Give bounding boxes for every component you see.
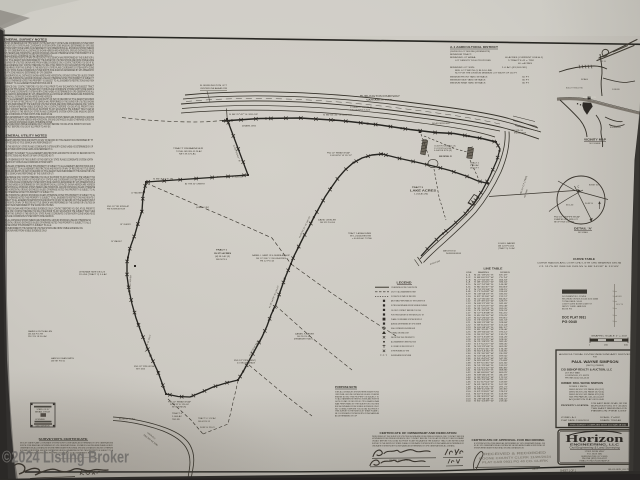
svg-text:NET 39.371 AC: NET 39.371 AC (179, 152, 197, 155)
svg-text:S PERFORMED BY THE: S PERFORMED BY THE (391, 351, 409, 353)
svg-text:PB 2 PG 18 20.0 AC: PB 2 PG 18 20.0 AC (28, 335, 48, 338)
svg-text:AD83 AS DETERMINED BY GPS OBSE: AD83 AS DETERMINED BY GPS OBSER (391, 322, 421, 325)
svg-text:TOTAL GROSS 41.26 AC: TOTAL GROSS 41.26 AC (176, 150, 203, 153)
svg-text:PURPOSE NOTE: PURPOSE NOTE (335, 386, 357, 389)
svg-text:EMAIL HORIZON@EXAMPLE: EMAIL HORIZON@EXAMPLE (580, 460, 611, 463)
svg-text:OWNER: PAUL WAYNE SIMPSON: OWNER: PAUL WAYNE SIMPSON (561, 382, 603, 385)
svg-text:LEGEND: LEGEND (397, 281, 412, 285)
svg-text:CERTIFICATE OF APPROVAL FOR RE: CERTIFICATE OF APPROVAL FOR RECORDING (472, 439, 545, 442)
svg-text:30 FT: 30 FT (522, 83, 530, 85)
svg-text:ATE PLANE COORDINATE SYSTEM NO: ATE PLANE COORDINATE SYSTEM NORTH ZONE N… (3, 215, 54, 218)
svg-text:SR 20: SR 20 (600, 61, 606, 63)
svg-text:B. BURLINGTON JCT: B. BURLINGTON JCT (200, 85, 228, 87)
svg-text:LINE TABLE: LINE TABLE (484, 267, 503, 271)
svg-text:GENERAL UTILITY NOTES: GENERAL UTILITY NOTES (3, 134, 47, 138)
svg-text:BEARING: BEARING (478, 271, 490, 274)
svg-text:N BEND: N BEND (612, 89, 621, 91)
svg-text:PG 456 (TRACT 2) 5.0 AC: PG 456 (TRACT 2) 5.0 AC (79, 273, 108, 276)
svg-text:NOV 26: NOV 26 (616, 304, 623, 306)
svg-text:NO SCALE: NO SCALE (590, 142, 602, 145)
svg-text:PLAT DATE: 11/06/2024: PLAT DATE: 11/06/2024 (561, 419, 590, 422)
svg-text:DB 1 P 2047 C 200.68 ACRES: DB 1 P 2047 C 200.68 ACRES (256, 257, 287, 260)
svg-text:ROSES J SMITH: ROSES J SMITH (569, 386, 588, 388)
svg-text:O TITLE SEARCH WAS PERFORMED B: O TITLE SEARCH WAS PERFORMED BY THE SURV… (3, 173, 54, 176)
svg-text:NO ACCESS ESMT: NO ACCESS ESMT (432, 122, 451, 125)
svg-text:JECT TO ALL EASEMENTS REST: JECT TO ALL EASEMENTS REST (391, 291, 417, 294)
svg-text:MIN. LOT WIDTH @ BLDG LINE: MIN. LOT WIDTH @ BLDG LINE (455, 70, 493, 72)
svg-text:A-1 AGRICULTURAL DISTRICT: A-1 AGRICULTURAL DISTRICT (450, 45, 499, 49)
svg-text:(DEC'D) (OWNER): (DEC'D) (OWNER) (586, 365, 604, 367)
svg-text:0.4 ACRE SITE (R): 0.4 ACRE SITE (R) (434, 149, 452, 152)
svg-text:0: 0 (589, 345, 590, 347)
svg-text:S OF WAY OF RECORD NO TI: S OF WAY OF RECORD NO TI (391, 345, 414, 348)
svg-text:NATE SYSTEM NORTH ZONE NAD83 A: NATE SYSTEM NORTH ZONE NAD83 AS DETERMIN… (3, 148, 53, 151)
svg-text:MINIMUM TRACT:: MINIMUM TRACT: (450, 53, 473, 56)
svg-text:BULLITTSVILLE RD: BULLITTSVILLE RD (566, 88, 584, 90)
svg-text:CURVE RADIUS ARC LGTH CHD L: CURVE RADIUS ARC LGTH CHD LGTH CHD BEARI… (537, 261, 622, 264)
svg-text:©2024 Listing Broker: ©2024 Listing Broker (2, 449, 129, 467)
svg-text:FND 1/2″ REBAR W/CAP: FND 1/2″ REBAR W/CAP (327, 152, 351, 155)
svg-text:S 86°01′41″ E 450.00′: S 86°01′41″ E 450.00′ (323, 115, 353, 117)
svg-text:MINIMUM LOT AREA:: MINIMUM LOT AREA: (450, 56, 477, 59)
svg-text:DANIEL L CAMP JR & DEBRA BISHO: DANIEL L CAMP JR & DEBRA BISHOP (252, 254, 291, 257)
svg-text:C/O BISHOP REALTY & AUCTION, L: C/O BISHOP REALTY & AUCTION, LLC (561, 369, 612, 372)
svg-text:PAUL WAYNE SIMPSON: PAUL WAYNE SIMPSON (572, 360, 619, 364)
svg-text:CENTERLINE AHEAD RW: CENTERLINE AHEAD RW (200, 87, 227, 90)
svg-text:SET STONE (R): SET STONE (R) (172, 407, 186, 409)
svg-text:DEED BOOK 123 PAGE 456 (1/2): DEED BOOK 123 PAGE 456 (1/2) (569, 388, 604, 391)
svg-text:GENERAL SURVEY NOTES: GENERAL SURVEY NOTES (1, 38, 47, 42)
svg-text:40 ± ACRES: 40 ± ACRES (518, 62, 533, 65)
svg-text:D RIGHTS OF WAY OF RECORD: D RIGHTS OF WAY OF RECORD (391, 295, 416, 298)
svg-text:VARIABLE R/W: VARIABLE R/W (366, 99, 392, 102)
svg-text:TAX PIN PARCEL 041-00-00-007: TAX PIN PARCEL 041-00-00-007 (569, 395, 605, 398)
svg-text:ENGINEERING, LLC: ENGINEERING, LLC (570, 443, 620, 447)
svg-text:(REMAINDER TRACT): (REMAINDER TRACT) (294, 338, 313, 341)
svg-text:EDGE OF TRAIL: EDGE OF TRAIL (119, 418, 135, 421)
svg-text:PG 0040: PG 0040 (562, 320, 577, 324)
svg-text:S 81°14′39″ W: S 81°14′39″ W (474, 401, 494, 403)
svg-text:N 48° E: N 48° E (585, 203, 594, 205)
svg-text:MINIMUM LOT SIZE:: MINIMUM LOT SIZE: (450, 67, 476, 69)
svg-text:(GRAVEL DRV): (GRAVEL DRV) (242, 125, 256, 128)
svg-text:L54: L54 (466, 401, 471, 403)
svg-text:CE ONLY CONTACT BEFORE YOU DIG: CE ONLY CONTACT BEFORE YOU DIG (391, 309, 421, 312)
svg-text:50 FT: 50 FT (522, 77, 530, 79)
svg-text:S 86°43′27″ W: S 86°43′27″ W (153, 179, 173, 181)
svg-text:IDLEWILD: IDLEWILD (610, 127, 622, 129)
svg-text:(DIVISION LOT MIN REQUIREMENTS: (DIVISION LOT MIN REQUIREMENTS) (450, 51, 490, 53)
svg-text:TRACT REMAINDER: TRACT REMAINDER (173, 147, 204, 150)
svg-text:MINIMUM SIDE YARD SETBACK:: MINIMUM SIDE YARD SETBACK: (450, 79, 487, 82)
svg-text:OTHERWISE NOTED THIS PROPE: OTHERWISE NOTED THIS PROPE (391, 287, 417, 289)
svg-text:NE OF TRUE CORNER: NE OF TRUE CORNER (554, 221, 575, 223)
svg-text:ESS OTHERWISE NOTED THIS PROPE: ESS OTHERWISE NOTED THIS PROPERTY IS SUB… (3, 192, 54, 194)
svg-text:24″ WALNUT: 24″ WALNUT (111, 240, 123, 243)
svg-text:SURVEYOR'S CERTIFICATE: SURVEYOR'S CERTIFICATE (39, 437, 88, 441)
svg-text:LAKE ACRES: LAKE ACRES (410, 190, 437, 193)
svg-text:39.371 ACRES: 39.371 ACRES (214, 252, 232, 255)
svg-text:DRAWN: TRK/LAB: DRAWN: TRK/LAB (600, 419, 622, 422)
svg-text:C: C (578, 186, 580, 189)
svg-text:N 86°17′03″ E 320.51′: N 86°17′03″ E 320.51′ (217, 176, 244, 178)
svg-text:DAVID CRISLER: DAVID CRISLER (318, 219, 337, 222)
svg-text:W/ 1.234 ACRES RW: W/ 1.234 ACRES RW (350, 235, 371, 238)
svg-text:NOT FOR THE DIVISION MINIMUM L: NOT FOR THE DIVISION MINIMUM LOT WIDTH O… (455, 73, 518, 75)
svg-text:5 TRACTS 41 ± TRK: 5 TRACTS 41 ± TRK (508, 59, 535, 62)
svg-text:BOOK PG: BOOK PG (562, 309, 573, 311)
svg-text:END ACCESS: END ACCESS (514, 132, 527, 135)
svg-text:BURLINGTON PARKWAY: BURLINGTON PARKWAY (360, 95, 401, 98)
svg-text:S ALL DISTANCES SHOWN HER: S ALL DISTANCES SHOWN HER (391, 327, 415, 330)
svg-text:40 ACRES (CURRENT USE A-1): 40 ACRES (CURRENT USE A-1) (505, 56, 543, 59)
svg-text:400: 400 (624, 345, 628, 347)
svg-text:SHOWN HEREON ARE HORIZONTAL GR: SHOWN HEREON ARE HORIZONTAL GROUND DISTA… (474, 447, 524, 450)
svg-text:SCALE: 1″=200′: SCALE: 1″=200′ (600, 416, 621, 419)
svg-text:FOR: FOR (593, 357, 598, 359)
svg-text:C1 1175.92 268.58 243: C1 1175.92 268.58 243.55 S 88°14′09″ E 1… (539, 266, 620, 268)
svg-text:ISE NOTED THIS PROPERTY I: ISE NOTED THIS PROPERTY I (391, 337, 415, 339)
svg-text:CURVE TABLE: CURVE TABLE (573, 258, 596, 261)
svg-text:18″ CHERRY: 18″ CHERRY (120, 224, 132, 226)
svg-text:DISTANCE: DISTANCE (500, 271, 511, 274)
svg-text:VICINITY MAP: VICINITY MAP (584, 139, 606, 142)
svg-text:FND 1/2″ PIPE W/CAP: FND 1/2″ PIPE W/CAP (134, 365, 156, 368)
svg-text:EM NORTH ZONE NAD83 AS DETERMI: EM NORTH ZONE NAD83 AS DETERMINED BY GPS… (1, 72, 53, 75)
svg-text:300.00': 300.00' (157, 181, 167, 183)
svg-text:ILITIES SHOWN ARE FROM VISIBLE: ILITIES SHOWN ARE FROM VISIBLE EVIDEN (391, 304, 427, 307)
svg-text:BURLINGTON: BURLINGTON (583, 97, 597, 99)
svg-text:(TRACT 5) 2.0 AC: (TRACT 5) 2.0 AC (498, 247, 516, 250)
svg-text:FOR THIS SURVEY IS THE KENTUCK: FOR THIS SURVEY IS THE KENTUCKY ST (391, 314, 425, 316)
svg-text:1.0 AC (43,560 SF): 1.0 AC (43,560 SF) (502, 66, 527, 69)
svg-text:N 88° E 210.5': N 88° E 210.5' (200, 427, 216, 429)
svg-text:DOC PLAT 0931: DOC PLAT 0931 (562, 316, 586, 320)
svg-text:PLANE COORDINATE SYSTEM NORTH: PLANE COORDINATE SYSTEM NORTH Z (391, 318, 423, 321)
svg-text:LETA MAE TATE DB 123: LETA MAE TATE DB 123 (79, 271, 105, 274)
svg-text:JOHN L BAKER: JOHN L BAKER (498, 242, 516, 245)
svg-text:HEBRON FIRE DIST: HEBRON FIRE DIST (591, 411, 629, 413)
svg-text:SEE DETAIL 'A': SEE DETAIL 'A' (439, 155, 452, 158)
svg-text:TRACT 1: TRACT 1 (216, 249, 228, 252)
svg-text:Y IS SUBJECT TO ALL EASEMENTS: Y IS SUBJECT TO ALL EASEMENTS RESTRICTIO… (1, 82, 52, 85)
svg-text:SEE NOTE 4: SEE NOTE 4 (216, 259, 227, 261)
svg-text:DB 321 PG 654: DB 321 PG 654 (320, 222, 335, 224)
svg-text:0.5' BELOW GRADE: 0.5' BELOW GRADE (237, 362, 256, 365)
svg-text:MINIMUM FRONT YARD SETBACK:: MINIMUM FRONT YARD SETBACK: (450, 76, 489, 79)
svg-text:SEARCH WAS PERFORMED BY THE SU: SEARCH WAS PERFORMED BY THE SURVEYOR UTI… (3, 204, 54, 207)
svg-text:SCALE: SCALE (581, 78, 589, 81)
svg-text:S 86°27′47″ E 320.93′: S 86°27′47″ E 320.93′ (229, 114, 259, 116)
svg-text:FND 1/2″ REBAR W/CAP: FND 1/2″ REBAR W/CAP (168, 401, 192, 404)
svg-text:FND 1/2″ RR SPIKE AT: FND 1/2″ RR SPIKE AT (107, 205, 130, 208)
svg-text:HAROLD DEAN SMITH: HAROLD DEAN SMITH (51, 357, 75, 360)
svg-text:INGRESS/EGRESS: INGRESS/EGRESS (446, 253, 462, 255)
svg-text:AT THE 30″ CHERRY: AT THE 30″ CHERRY (185, 183, 206, 186)
svg-text:Civil Engineering & Land Surve: Civil Engineering & Land Surveying (570, 446, 621, 449)
svg-text:DATE: DATE (532, 467, 539, 470)
svg-text:TRACT 4: TRACT 4 (172, 412, 182, 415)
svg-text:JAMES & RUTH ALLEN: JAMES & RUTH ALLEN (28, 330, 53, 333)
svg-text:MINIMUM REAR YARD SETBACK:: MINIMUM REAR YARD SETBACK: (450, 82, 486, 85)
svg-text:PHONE (502) 555-0134: PHONE (502) 555-0134 (565, 378, 590, 380)
svg-text:= 40.605 AC TOTAL: = 40.605 AC TOTAL (352, 237, 372, 240)
svg-text:Y CONTACT BEFORE YOU DIG AT 81: Y CONTACT BEFORE YOU DIG AT 811 PRIOR TO… (1, 126, 51, 129)
svg-text:LOT DENSITY 5/100 PROPOSED: LOT DENSITY 5/100 PROPOSED (455, 60, 492, 62)
svg-text:LINE: LINE (466, 272, 472, 274)
svg-text:HE KENTUCKY STATE PLANE COORDI: HE KENTUCKY STATE PLANE COORDINATE SYSTE… (3, 161, 53, 164)
svg-text:ZONTAL GROUND DIST: ZONTAL GROUND DIST (391, 332, 410, 335)
svg-text:219.40′: 219.40′ (499, 401, 508, 403)
svg-text:(M) 38.1 AC (R): (M) 38.1 AC (R) (215, 255, 230, 258)
svg-text:SET 1823: SET 1823 (136, 369, 145, 371)
svg-text:DB 557 PG 1223: DB 557 PG 1223 (350, 110, 371, 112)
svg-text:ERWISE NOTED THIS PROPERTY IS: ERWISE NOTED THIS PROPERTY IS SUBJECT TO… (3, 224, 52, 227)
svg-text:DB 987 PG 65: DB 987 PG 65 (51, 361, 65, 363)
svg-text:PROPERTY LOCATION:: PROPERTY LOCATION: (561, 404, 589, 407)
svg-text:AGRICULTURAL DIVISION/BOUNDARY: AGRICULTURAL DIVISION/BOUNDARY SURVEY (559, 353, 632, 356)
svg-text:E PLANE COORDINATE SYSTEM NORT: E PLANE COORDINATE SYSTEM NORTH ZONE NAD… (1, 113, 53, 116)
svg-text:ORDINATE SYSTEM NORTH ZONE NAD: ORDINATE SYSTEM NORTH ZONE NAD83 AS DETE… (372, 445, 455, 448)
svg-text:CERTIFICATE OF OWNERSHIP AND D: CERTIFICATE OF OWNERSHIP AND DEDICATION (380, 432, 457, 435)
svg-text:1.000 AC: 1.000 AC (172, 415, 183, 418)
svg-text:EXIST 30': EXIST 30' (589, 185, 600, 187)
svg-text:PB 12 PG 34: PB 12 PG 34 (260, 260, 274, 262)
svg-text:AS DETERMINED BY GP: AS DETERMINED BY GP (335, 415, 358, 418)
svg-text:PIN IN SHRUB ROW: PIN IN SHRUB ROW (107, 209, 125, 211)
svg-text:ACQUISITION PLAT 0931 0040: ACQUISITION PLAT 0931 0040 (569, 398, 605, 401)
svg-text:SHOWN ARE FROM VISIB: SHOWN ARE FROM VISIB (391, 354, 411, 357)
svg-text:DB 44 PG 55: DB 44 PG 55 (198, 421, 210, 423)
svg-text:DB 44 P 7: DB 44 P 7 (470, 167, 479, 169)
svg-text:TBD RD: TBD RD (172, 419, 181, 421)
svg-text:12″ HACKBERRY: 12″ HACKBERRY (131, 192, 146, 195)
svg-text:FILED: FILED (616, 296, 623, 298)
svg-text:LICENSED: LICENSED (35, 419, 46, 421)
svg-text:30 FT: 30 FT (522, 80, 530, 82)
svg-text:BRIAN J RICE: BRIAN J RICE (35, 410, 51, 413)
svg-text:TRACT 5 / 1.52 AC: TRACT 5 / 1.52 AC (198, 417, 217, 420)
svg-text:ZONED: A-1: ZONED: A-1 (561, 416, 577, 419)
svg-text:S RESTRICTIONS AND RIGHTS OF W: S RESTRICTIONS AND RIGHTS OF WAY OF RECO… (3, 155, 54, 158)
svg-text:DANIEL K BAKER: DANIEL K BAKER (295, 333, 315, 336)
svg-text:AY OF RECORD NO TITLE SEARCH W: AY OF RECORD NO TITLE SEARCH WAS PERFORM… (3, 142, 53, 145)
svg-text:B 0.21': B 0.21' (566, 205, 575, 207)
svg-text:THIS SURVEY COMPLIES WITH 201: THIS SURVEY COMPLIES WITH 201 KAR 18:150 (570, 424, 626, 427)
svg-text:S 48°08′50″ W 197.87′: S 48°08′50″ W 197.87′ (330, 155, 353, 157)
svg-text:GRAPHIC SCALE 1″ = 200′: GRAPHIC SCALE 1″ = 200′ (591, 335, 628, 338)
svg-text:DETAIL 'A': DETAIL 'A' (574, 228, 593, 231)
svg-text:ARCH WAS PERFORMED BY THE SURV: ARCH WAS PERFORMED BY THE SURVEYOR (391, 300, 425, 303)
svg-text:IES SHOWN ARE FROM VISIBLE EVI: IES SHOWN ARE FROM VISIBLE EVIDENCE ONLY (3, 230, 47, 233)
svg-text:TRACT 1 AREA SUMM: TRACT 1 AREA SUMM (348, 232, 371, 235)
svg-text:ALL EASEMENTS RESTRICTION: ALL EASEMENTS RESTRICTION (391, 341, 416, 344)
svg-text:1.234 AC (M): 1.234 AC (M) (414, 193, 428, 196)
svg-text:NO SCALE: NO SCALE (578, 231, 589, 234)
svg-text:(GRAVEL DRV): (GRAVEL DRV) (196, 206, 209, 209)
svg-text:200: 200 (604, 345, 608, 347)
